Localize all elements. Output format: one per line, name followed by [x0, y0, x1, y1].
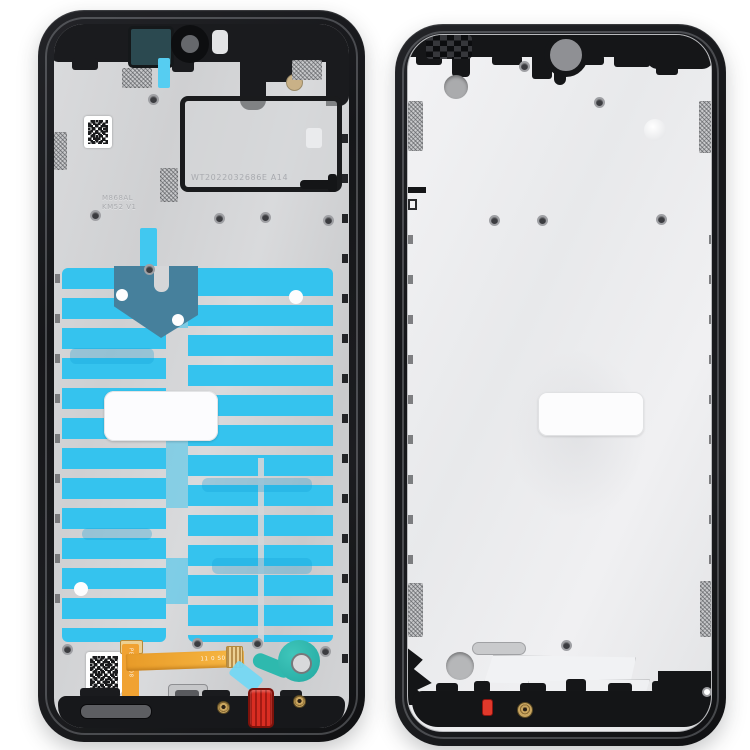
adhesive-blotch — [212, 558, 312, 574]
screw-hole — [92, 212, 99, 219]
screw-hole — [539, 217, 546, 224]
adhesive-blotch — [82, 528, 152, 540]
side-mesh-pad — [408, 101, 423, 151]
lcd-window-cutout — [538, 392, 644, 436]
screw-hole — [658, 216, 665, 223]
red-seal-plug — [482, 699, 493, 716]
screw-hole — [563, 642, 570, 649]
screw-hole — [216, 215, 223, 222]
top-grille — [426, 35, 472, 59]
lcd-window-cutout — [104, 391, 218, 441]
adhesive-tab-cyan-top — [158, 58, 170, 88]
screw-hole — [325, 217, 332, 224]
white-dot-hole — [644, 119, 666, 141]
gold-screw — [218, 702, 229, 713]
red-seal-plug — [248, 688, 274, 728]
front-camera-lens — [181, 35, 199, 53]
embossed-line1: M868AL — [102, 194, 137, 203]
molding-tooth — [492, 55, 522, 65]
right-frame-housing — [395, 24, 726, 746]
edge-tick — [407, 187, 426, 193]
drain-slot — [472, 642, 526, 655]
screw-hole — [194, 640, 201, 647]
screw-hole — [254, 640, 261, 647]
speaker-slot — [80, 704, 152, 719]
adhesive-comb-sticker — [62, 228, 333, 642]
bottom-hole — [446, 652, 474, 680]
white-sticker — [306, 128, 322, 148]
notch-stem — [554, 73, 566, 85]
black-gasket-bar — [328, 174, 337, 192]
screw-hole — [262, 214, 269, 221]
left-frame-plate: WT2022032686E A14 M868AL KM52 V1 — [54, 24, 349, 728]
film-hole — [116, 289, 128, 301]
screw-hole — [322, 648, 329, 655]
adhesive-blotch — [70, 348, 154, 364]
adhesive-bridge — [166, 438, 188, 508]
edge-clip-dashes — [408, 235, 413, 575]
embossed-line2: KM52 V1 — [102, 203, 137, 212]
embossed-code: M868AL KM52 V1 — [102, 194, 137, 212]
side-mesh-pad — [699, 101, 712, 153]
screw-hole — [521, 63, 528, 70]
plate-hole — [444, 75, 468, 99]
mesh-pad — [292, 60, 322, 80]
molding-tooth — [614, 53, 650, 67]
screw-hole — [491, 217, 498, 224]
edge-clip-dashes — [342, 134, 348, 674]
notch-camera-hole — [544, 34, 588, 77]
molding-tooth — [72, 58, 98, 70]
fingerprint-hole — [291, 653, 312, 674]
screw-hole — [150, 96, 157, 103]
mesh-pad — [160, 168, 178, 202]
side-mesh-pad — [700, 581, 712, 637]
battery-window-code: WT2022032686E A14 — [191, 173, 288, 182]
gold-screw — [294, 696, 305, 707]
screw-hole — [146, 266, 153, 273]
edge-slot — [408, 199, 417, 210]
adhesive-bridge — [166, 558, 188, 604]
white-screw-hole — [702, 687, 712, 697]
earpiece-cutout — [212, 30, 228, 54]
mesh-pad — [54, 132, 67, 170]
gold-screw — [518, 703, 532, 717]
adhesive-top-tab — [140, 228, 157, 268]
right-frame-plate — [407, 34, 712, 732]
adhesive-hole — [289, 290, 303, 304]
left-frame-housing: WT2022032686E A14 M868AL KM52 V1 — [38, 10, 365, 742]
adhesive-hole — [74, 582, 88, 596]
film-hole — [172, 314, 184, 326]
side-mesh-pad — [408, 583, 423, 637]
qr-code-sticker — [84, 116, 112, 148]
screw-hole — [64, 646, 71, 653]
edge-clip-dashes — [55, 274, 60, 634]
molding-block — [646, 35, 712, 69]
screw-hole — [596, 99, 603, 106]
mesh-pad — [122, 68, 152, 88]
product-photo: WT2022032686E A14 M868AL KM52 V1 — [0, 0, 750, 750]
adhesive-blotch — [202, 478, 312, 492]
bottom-molding — [412, 691, 710, 727]
graphite-film-notch — [154, 266, 169, 292]
edge-clip-dashes — [709, 235, 712, 575]
